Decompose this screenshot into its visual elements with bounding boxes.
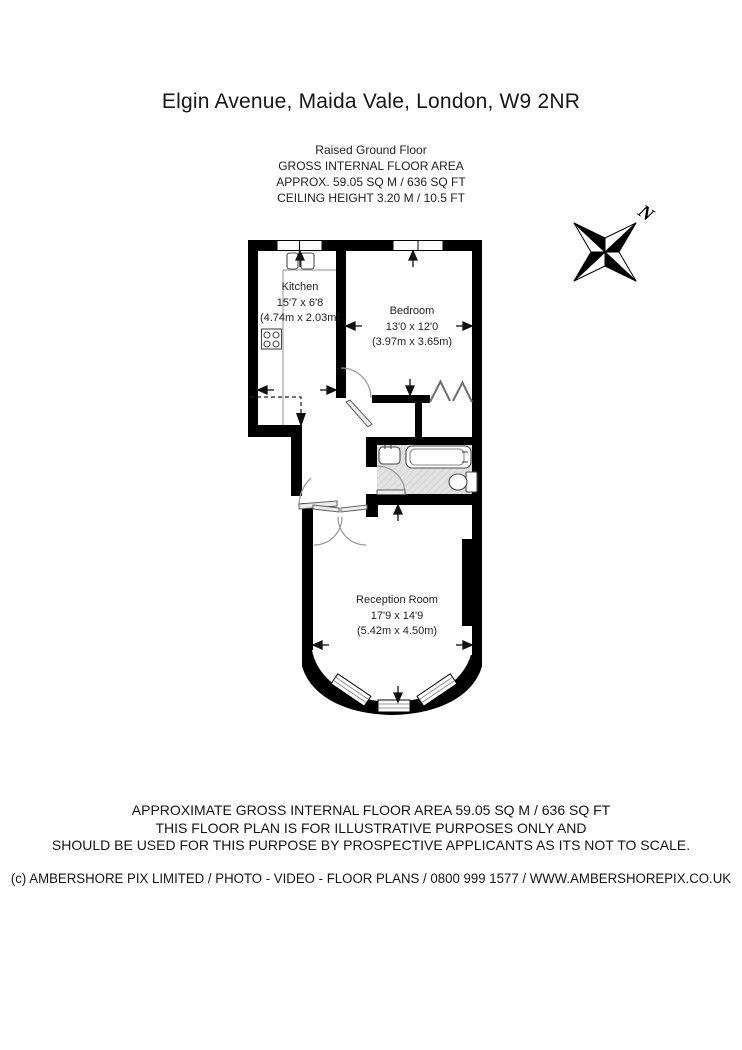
disclaimer-line-2: THIS FLOOR PLAN IS FOR ILLUSTRATIVE PURP… bbox=[0, 820, 742, 838]
bay-window-center bbox=[378, 700, 410, 712]
room-label-bedroom: Bedroom 13'0 x 12'0 (3.97m x 3.65m) bbox=[352, 304, 472, 351]
reception-door-right-leaf bbox=[341, 505, 367, 512]
room-label-kitchen: Kitchen 15'7 x 6'8 (4.74m x 2.03m) bbox=[240, 280, 360, 327]
copyright-text: (c) AMBERSHORE PIX LIMITED / PHOTO - VID… bbox=[7, 871, 734, 886]
kitchen-name: Kitchen bbox=[240, 280, 360, 296]
bedroom-size-imperial: 13'0 x 12'0 bbox=[352, 320, 472, 336]
north-label: N bbox=[633, 200, 658, 226]
closet-bifold-doors bbox=[430, 382, 472, 403]
room-label-reception: Reception Room 17'9 x 14'9 (5.42m x 4.50… bbox=[312, 593, 482, 640]
bedroom-door-leaf bbox=[346, 400, 372, 427]
reception-size-imperial: 17'9 x 14'9 bbox=[312, 609, 482, 625]
toilet-tank-icon bbox=[466, 472, 477, 492]
kitchen-size-metric: (4.74m x 2.03m) bbox=[240, 311, 360, 327]
reception-name: Reception Room bbox=[312, 593, 482, 609]
basin-icon bbox=[379, 447, 400, 464]
bay-window bbox=[302, 650, 482, 715]
hob-icon bbox=[262, 329, 282, 349]
entrance-path bbox=[250, 397, 306, 427]
floorplan-page: { "page": { "title": "Elgin Avenue, Maid… bbox=[0, 0, 742, 1050]
disclaimer: APPROXIMATE GROSS INTERNAL FLOOR AREA 59… bbox=[0, 802, 742, 855]
floor-plan-graphic: N bbox=[0, 0, 742, 1050]
bathroom bbox=[377, 445, 477, 494]
bedroom-size-metric: (3.97m x 3.65m) bbox=[352, 335, 472, 351]
compass-icon: N bbox=[574, 200, 658, 281]
toilet-icon bbox=[449, 474, 467, 490]
bedroom-name: Bedroom bbox=[352, 304, 472, 320]
disclaimer-line-1: APPROXIMATE GROSS INTERNAL FLOOR AREA 59… bbox=[0, 802, 742, 820]
kitchen-size-imperial: 15'7 x 6'8 bbox=[240, 296, 360, 312]
bathroom-door-leaf bbox=[377, 490, 405, 495]
disclaimer-line-3: SHOULD BE USED FOR THIS PURPOSE BY PROSP… bbox=[0, 837, 742, 855]
reception-size-metric: (5.42m x 4.50m) bbox=[312, 624, 482, 640]
